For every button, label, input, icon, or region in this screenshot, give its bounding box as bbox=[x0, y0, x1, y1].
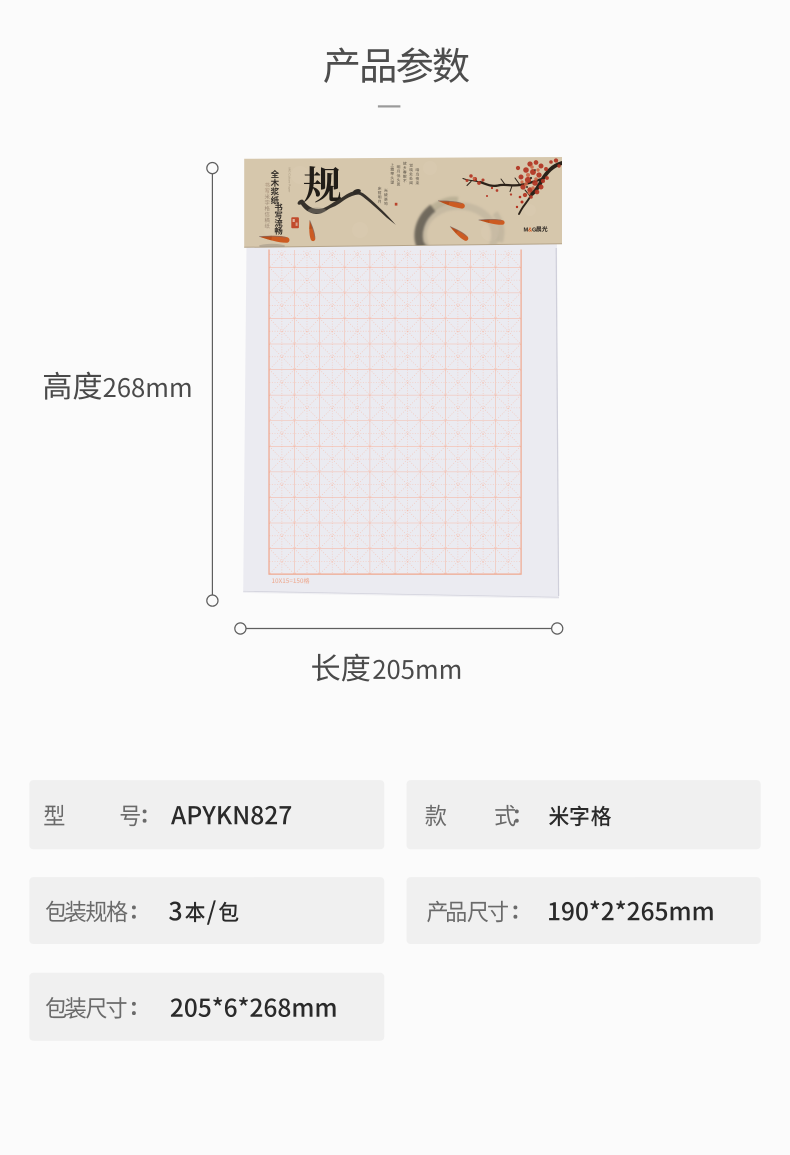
svg-text:MG Culture Paper: MG Culture Paper bbox=[287, 168, 291, 193]
svg-text:M&G: M&G bbox=[524, 227, 537, 233]
